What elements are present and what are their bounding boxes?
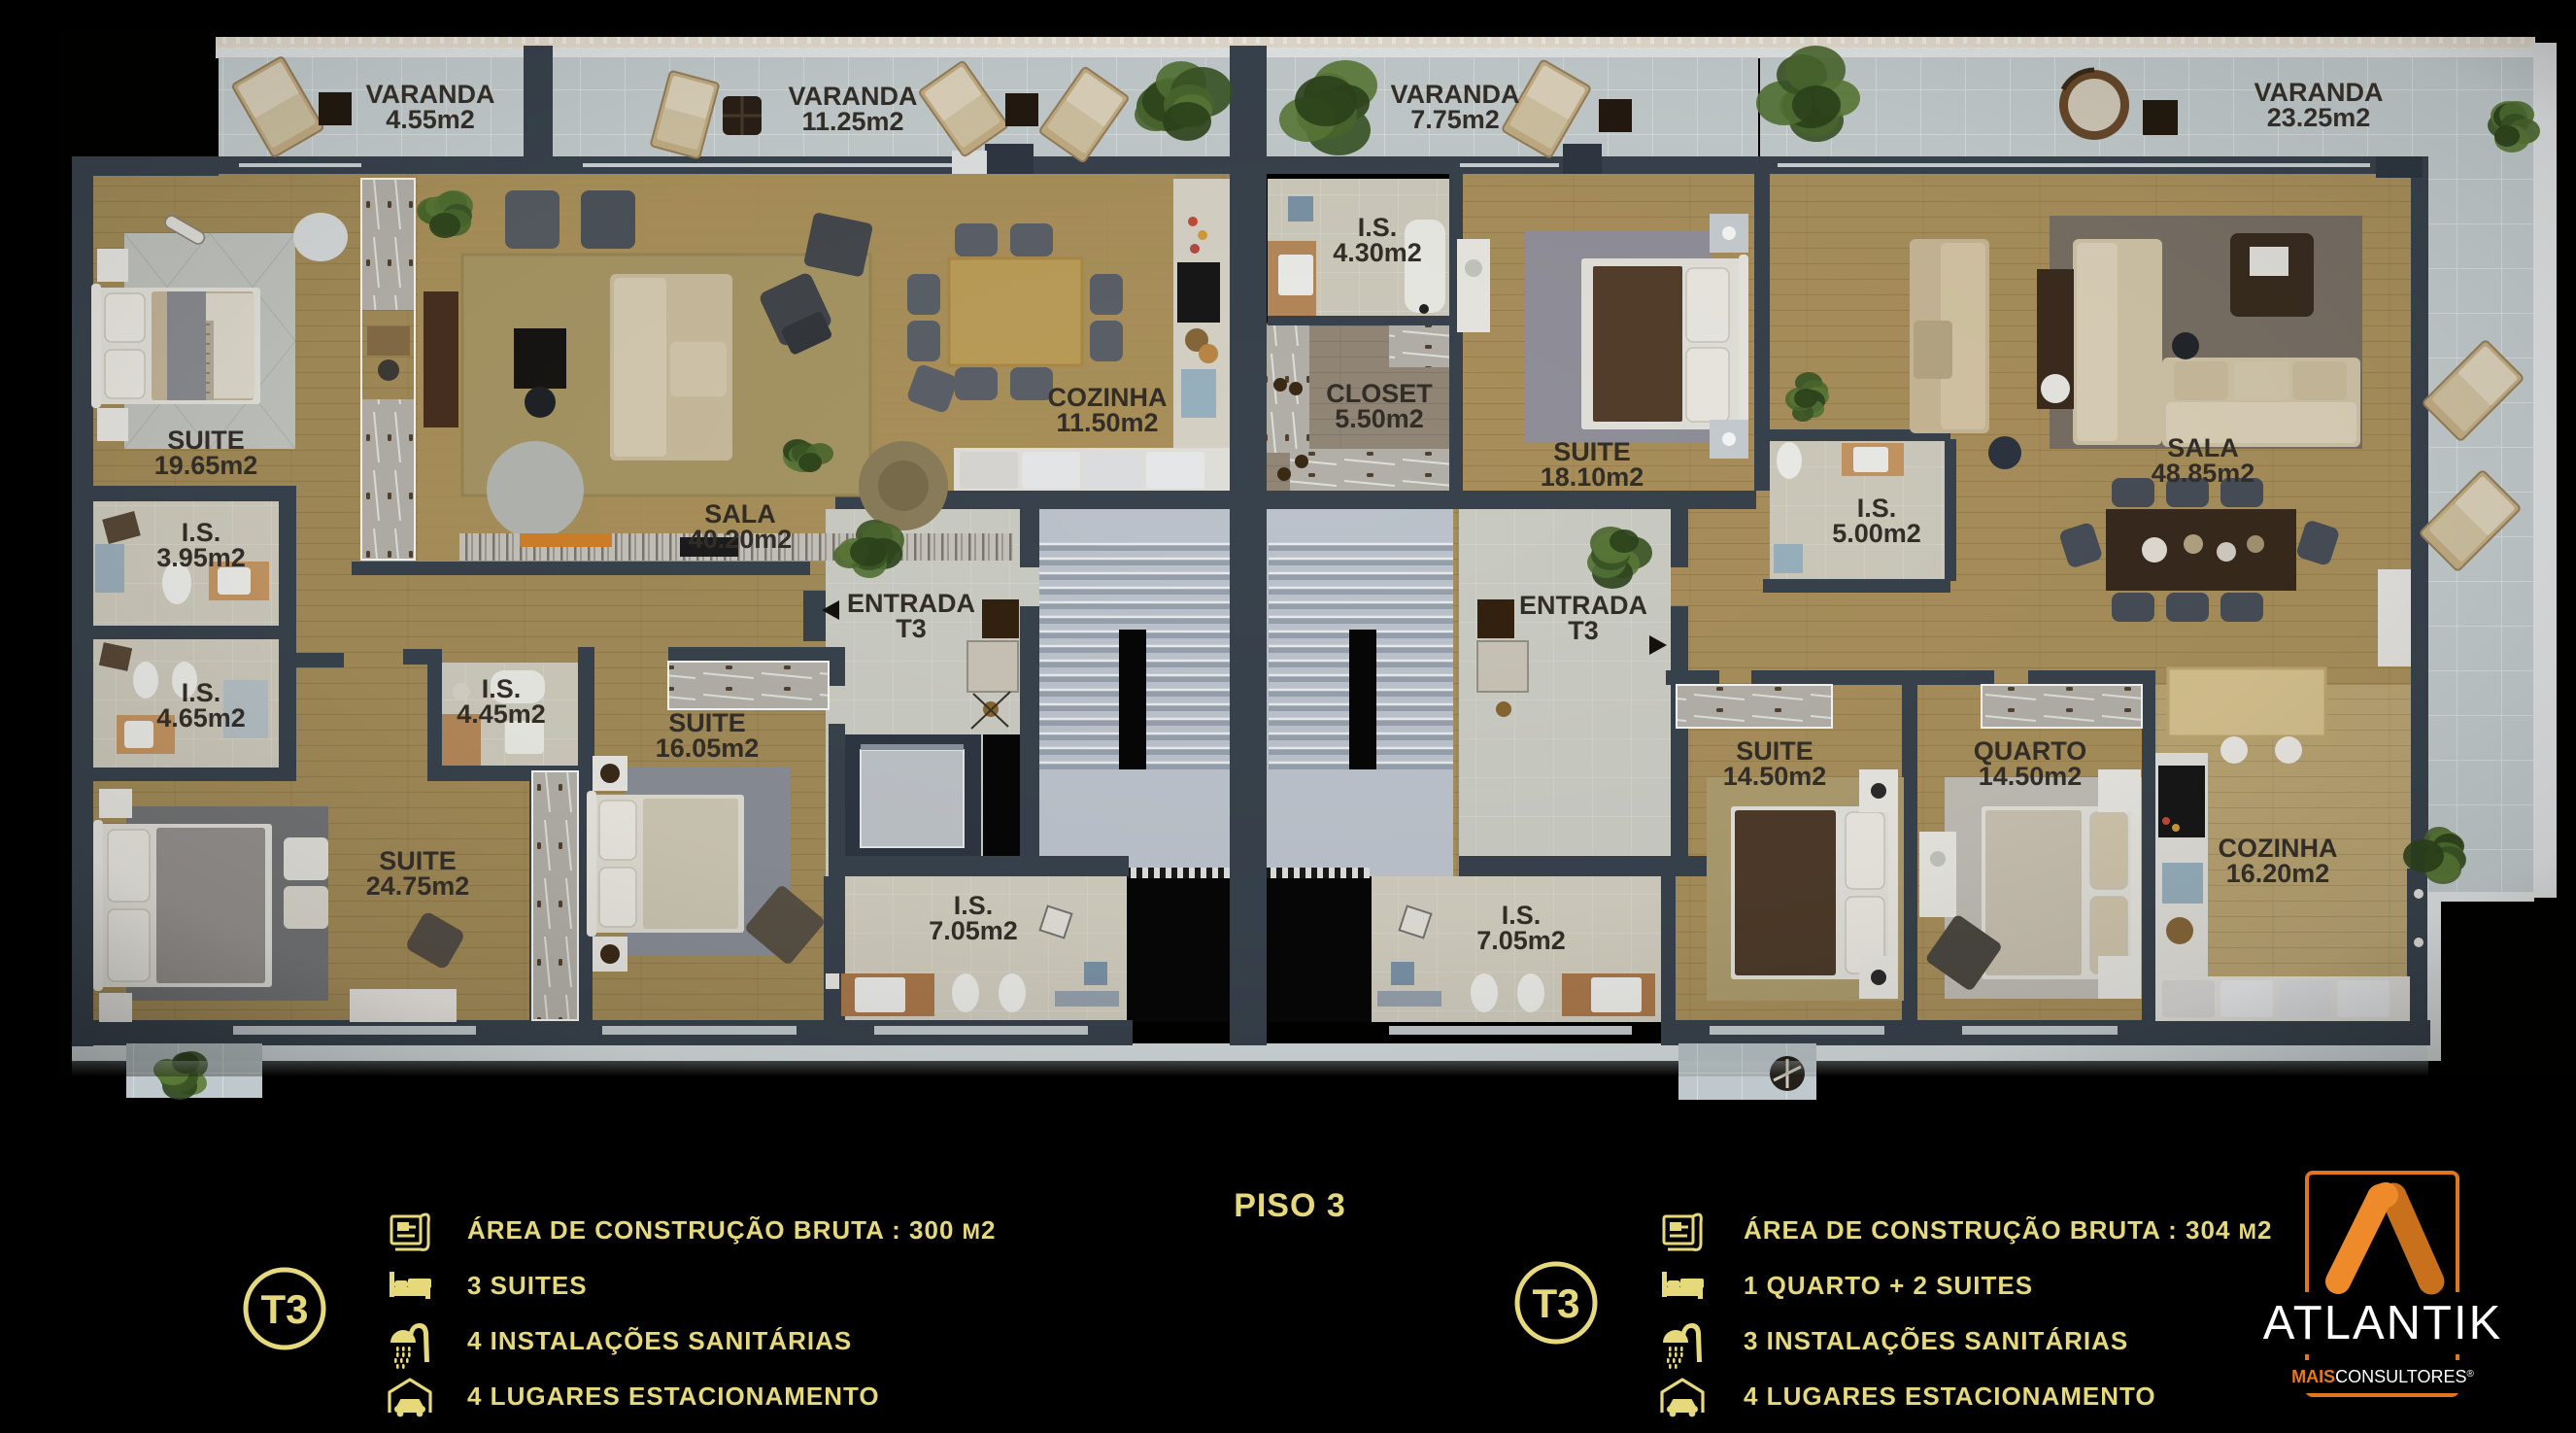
svg-text:4 LUGARES ESTACIONAMENTO: 4 LUGARES ESTACIONAMENTO [467,1382,880,1411]
svg-text:3 SUITES: 3 SUITES [467,1271,588,1300]
svg-text:PISO 3: PISO 3 [1234,1187,1346,1224]
svg-text:COZINHA11.50m2: COZINHA11.50m2 [1048,383,1168,437]
svg-text:COZINHA16.20m2: COZINHA16.20m2 [2219,834,2338,888]
svg-text:T3: T3 [1532,1280,1579,1326]
svg-text:ÁREA DE CONSTRUÇÃO BRUTA : 30: ÁREA DE CONSTRUÇÃO BRUTA : 300 M2 [467,1215,996,1245]
svg-text:SUITE19.65m2: SUITE19.65m2 [154,426,258,480]
svg-text:QUARTO14.50m2: QUARTO14.50m2 [1974,736,2087,791]
svg-text:4 INSTALAÇÕES SANITÁRIAS: 4 INSTALAÇÕES SANITÁRIAS [467,1326,852,1355]
svg-text:T3: T3 [260,1286,308,1332]
svg-text:SUITE14.50m2: SUITE14.50m2 [1723,736,1827,791]
svg-text:VARANDA11.25m2: VARANDA11.25m2 [789,82,918,136]
svg-text:4 LUGARES ESTACIONAMENTO: 4 LUGARES ESTACIONAMENTO [1744,1382,2156,1411]
svg-text:VARANDA23.25m2: VARANDA23.25m2 [2254,78,2384,132]
svg-text:SUITE24.75m2: SUITE24.75m2 [366,846,470,901]
svg-text:SUITE16.05m2: SUITE16.05m2 [656,708,760,763]
svg-text:ATLANTIK: ATLANTIK [2263,1297,2503,1349]
svg-text:3 INSTALAÇÕES SANITÁRIAS: 3 INSTALAÇÕES SANITÁRIAS [1744,1326,2128,1355]
svg-text:ÁREA DE CONSTRUÇÃO BRUTA : 30: ÁREA DE CONSTRUÇÃO BRUTA : 304 M2 [1744,1215,2272,1245]
svg-text:1 QUARTO + 2 SUITES: 1 QUARTO + 2 SUITES [1744,1271,2033,1300]
svg-text:SUITE18.10m2: SUITE18.10m2 [1541,437,1644,492]
svg-text:MAISCONSULTORES®: MAISCONSULTORES® [2291,1367,2474,1386]
svg-text:CLOSET5.50m2: CLOSET5.50m2 [1326,379,1433,433]
